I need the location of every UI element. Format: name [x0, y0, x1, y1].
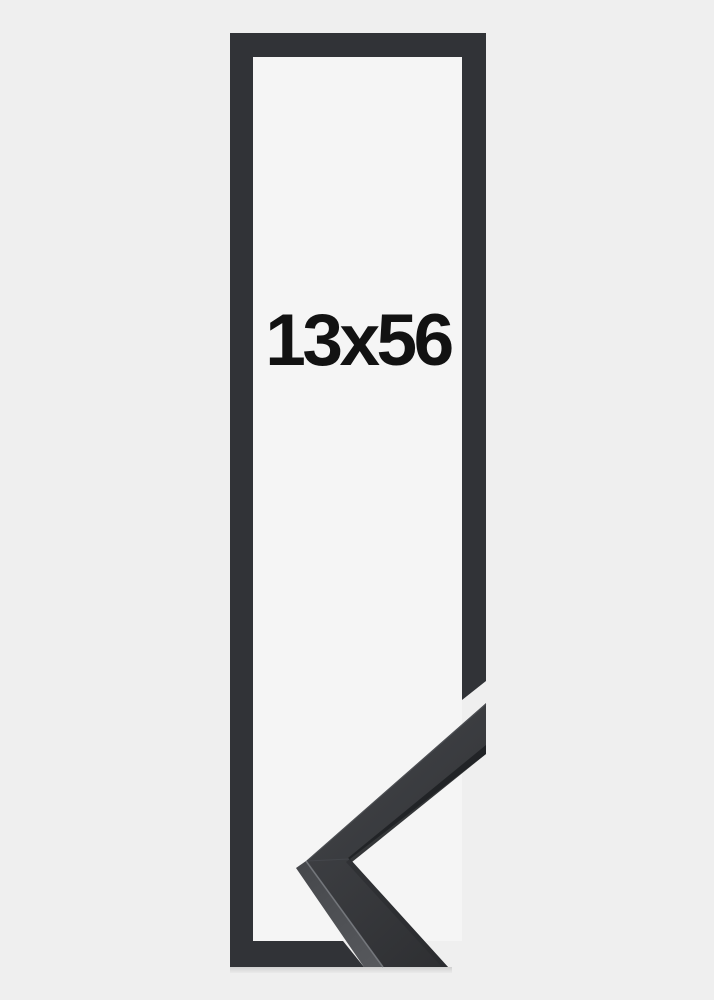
frame-bottom-bar	[230, 941, 364, 967]
bottom-shadow	[230, 967, 452, 973]
frame-left-bar	[230, 33, 253, 967]
frame-top-bar	[230, 33, 486, 57]
frame-size-illustration: 13x56	[0, 0, 714, 1000]
frame-right-bar	[462, 33, 486, 700]
product-image: 13x56	[0, 0, 714, 1000]
frame-interior	[253, 57, 462, 941]
size-label: 13x56	[265, 300, 451, 381]
